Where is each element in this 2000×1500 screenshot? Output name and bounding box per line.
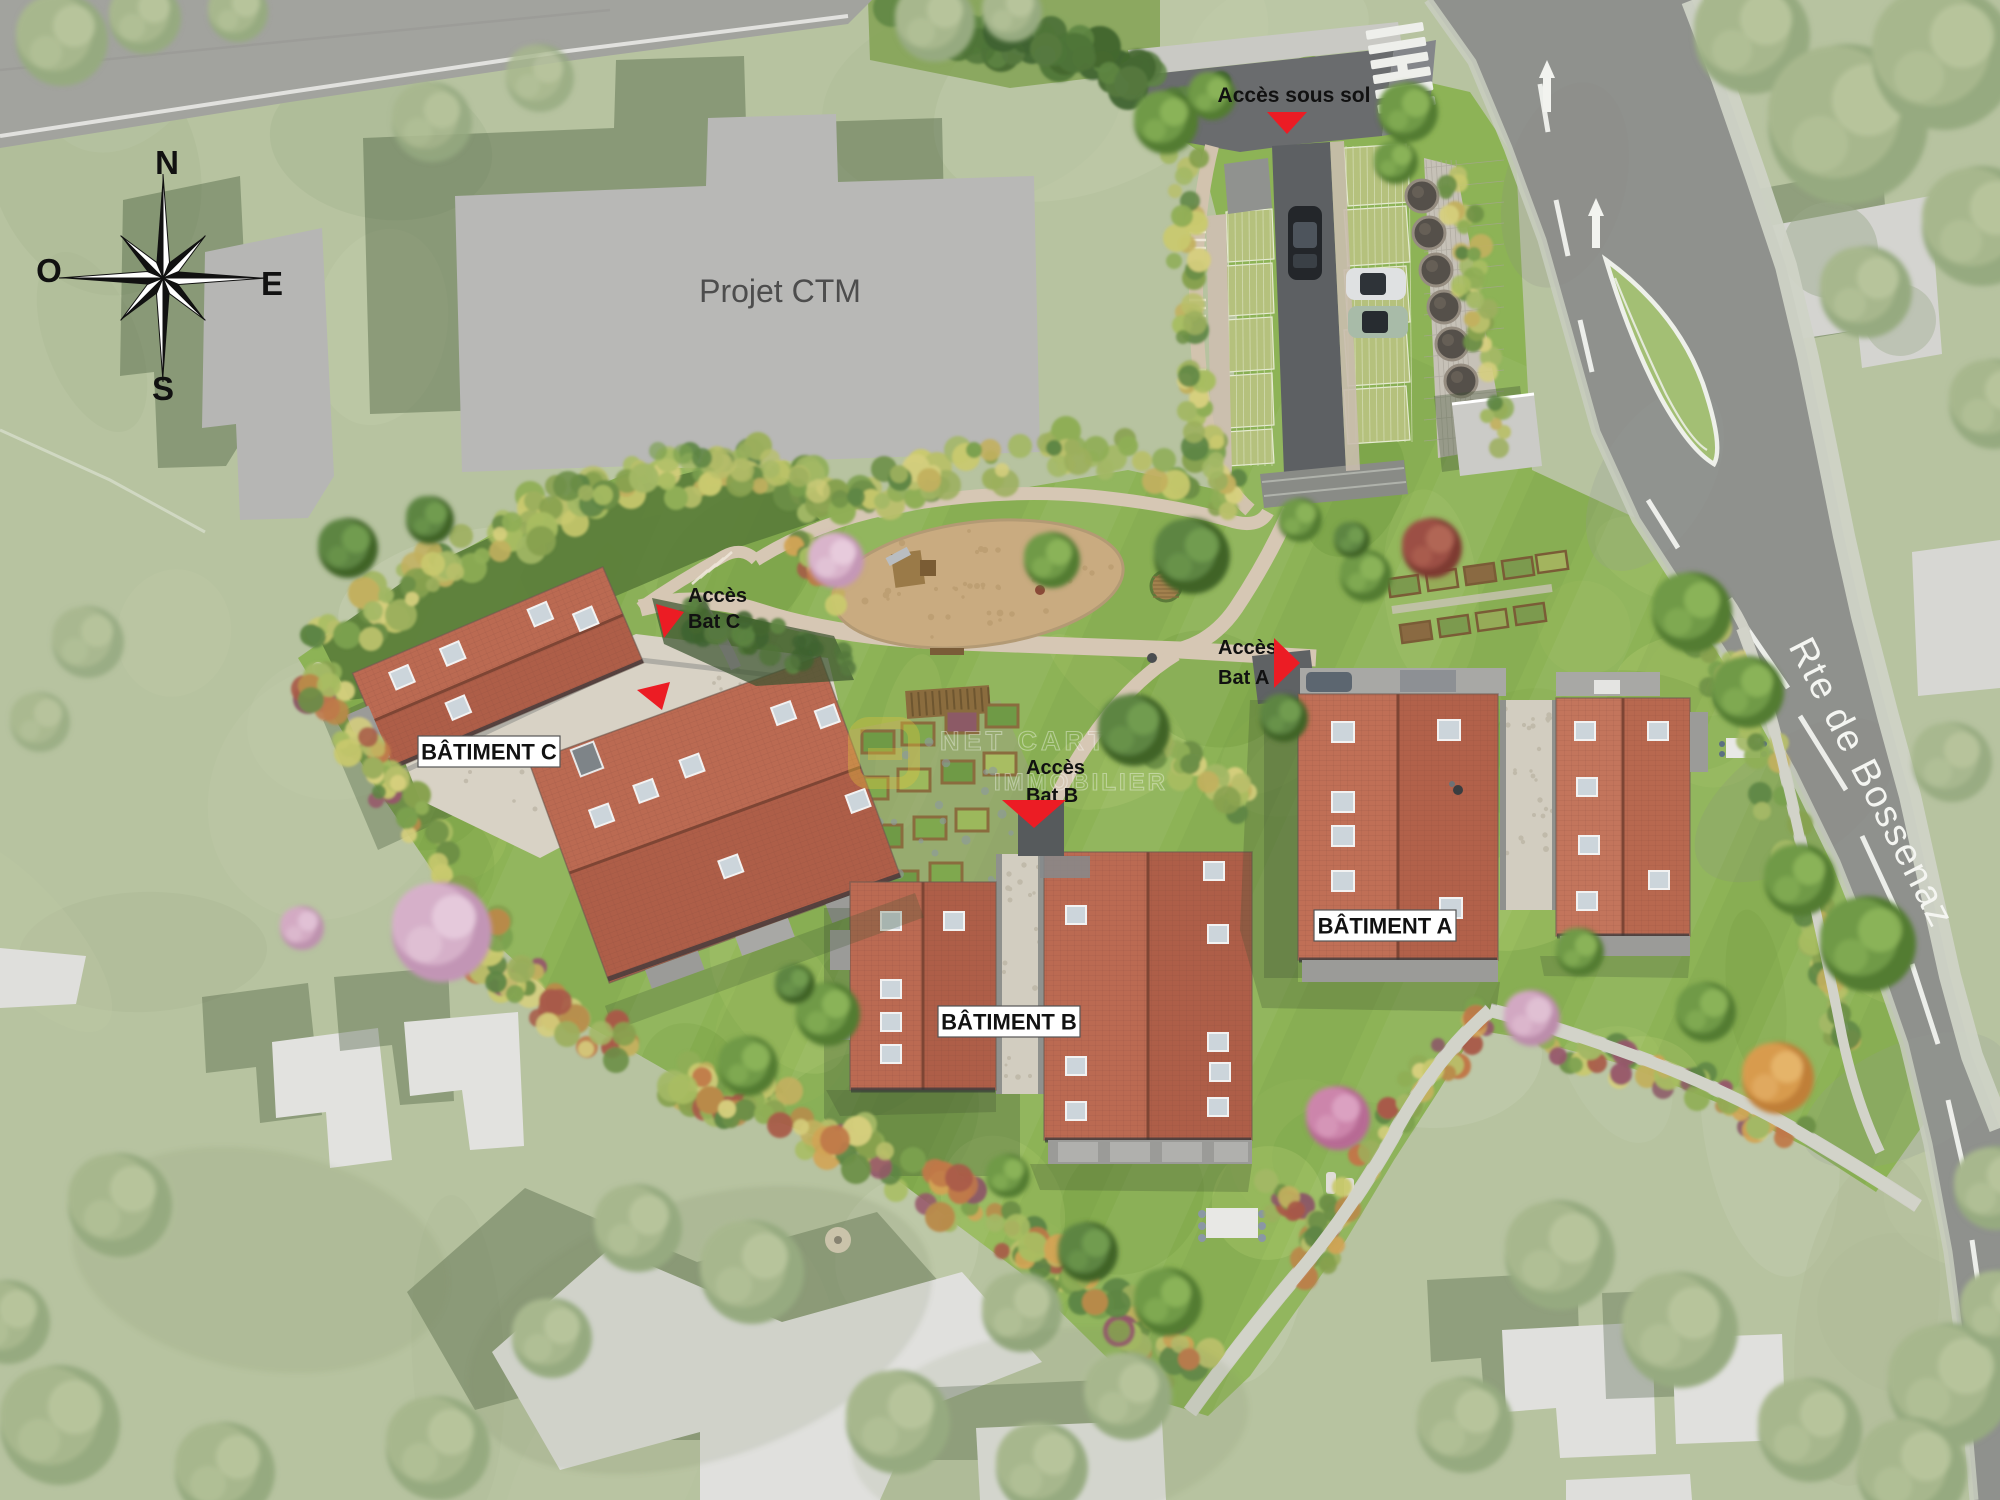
svg-text:BÂTIMENT B: BÂTIMENT B (941, 1010, 1077, 1035)
svg-text:E: E (261, 265, 283, 302)
svg-text:N: N (155, 144, 179, 181)
svg-text:Bat A: Bat A (1218, 667, 1269, 689)
svg-text:Accès: Accès (1026, 757, 1085, 779)
svg-text:Bat C: Bat C (688, 611, 740, 633)
svg-text:Accès sous sol: Accès sous sol (1218, 84, 1371, 107)
svg-text:BÂTIMENT A: BÂTIMENT A (1318, 914, 1453, 939)
svg-text:S: S (152, 370, 174, 407)
svg-text:Projet CTM: Projet CTM (699, 273, 861, 309)
svg-text:O: O (36, 252, 62, 289)
svg-text:Accès: Accès (1218, 637, 1277, 659)
svg-text:Accès: Accès (688, 585, 747, 607)
svg-text:BÂTIMENT C: BÂTIMENT C (421, 740, 557, 765)
